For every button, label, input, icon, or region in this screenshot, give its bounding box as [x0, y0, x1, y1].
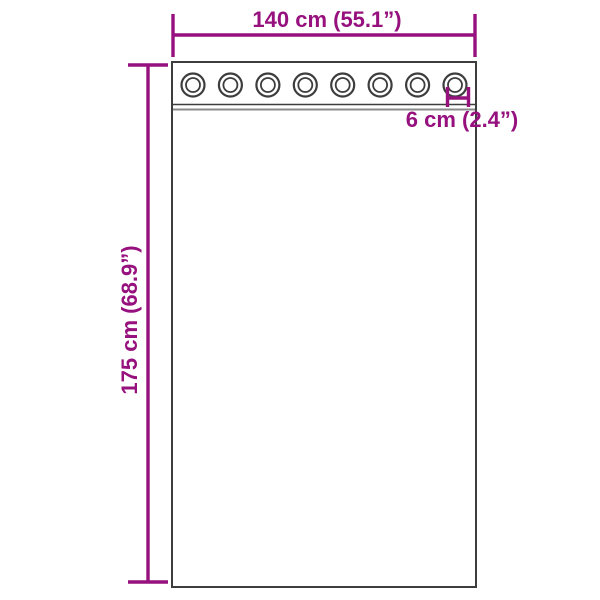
grommet-icon [373, 78, 387, 92]
height-dimension: 175 cm (68.9”) [117, 65, 168, 582]
grommet-icon [186, 78, 200, 92]
grommet-icon [298, 78, 312, 92]
curtain-dimension-diagram: 140 cm (55.1”) 175 cm (68.9”) 6 cm (2.4”… [0, 0, 600, 600]
grommet-size-label: 6 cm (2.4”) [406, 107, 519, 132]
grommet-icon [448, 78, 462, 92]
grommet-icon [261, 78, 275, 92]
grommet-icon [336, 78, 350, 92]
grommet-icon [411, 78, 425, 92]
diagram-canvas: 140 cm (55.1”) 175 cm (68.9”) 6 cm (2.4”… [0, 0, 600, 600]
grommet-icon [223, 78, 237, 92]
width-dimension: 140 cm (55.1”) [173, 7, 475, 57]
curtain-panel [172, 62, 476, 587]
height-label: 175 cm (68.9”) [117, 245, 142, 394]
width-label: 140 cm (55.1”) [252, 7, 401, 32]
